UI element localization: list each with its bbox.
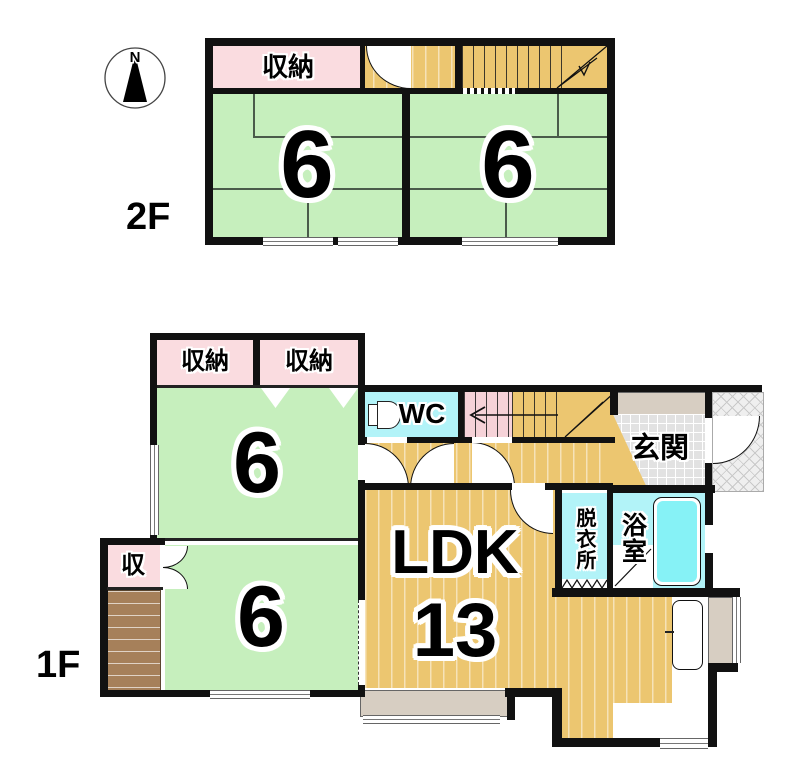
exterior-wall — [613, 485, 715, 493]
window — [338, 237, 398, 246]
window — [150, 445, 159, 535]
window — [210, 690, 310, 699]
exterior-wall — [100, 538, 108, 697]
floor2-room-b-size: 6 — [481, 117, 534, 213]
stair-opening-dashes — [460, 88, 515, 94]
entry-door-opening — [705, 418, 712, 463]
kitchen-floor — [613, 597, 672, 703]
floor1-plan: 収納 収納 6 収 6 WC 玄関 LDK 13 脱衣所 浴室 — [95, 330, 767, 760]
room-lower-size: 6 — [237, 574, 285, 660]
stairs-winder-lines — [565, 392, 615, 437]
floor2-plan: 収納 6 6 — [205, 38, 615, 245]
window — [263, 237, 333, 246]
ldk-size-label: 13 — [413, 593, 498, 669]
shoe-cabinet — [612, 392, 709, 416]
window — [363, 715, 500, 724]
dressing-label: 脱衣所 — [574, 508, 594, 571]
interior-wall — [253, 340, 260, 385]
ldk-label: LDK — [391, 522, 518, 584]
kitchen-floor — [555, 597, 613, 738]
exterior-wall — [507, 690, 515, 720]
exterior-wall — [150, 333, 157, 445]
interior-wall — [512, 437, 615, 443]
room-upper-size: 6 — [233, 420, 281, 506]
door-opening — [472, 437, 512, 443]
door-opening — [358, 445, 365, 480]
floor-plan-canvas: N 2F — [0, 0, 800, 783]
exterior-wall — [100, 538, 165, 545]
bathtub-icon — [653, 497, 701, 586]
door-opening — [512, 483, 545, 490]
interior-wall — [402, 94, 410, 237]
stairs-winder-lines — [557, 46, 607, 88]
exterior-wall — [205, 38, 213, 245]
interior-wall — [455, 46, 462, 88]
storage-small-label: 収 — [121, 554, 145, 578]
entrance-label: 玄関 — [631, 435, 689, 464]
exterior-wall — [358, 385, 762, 392]
interior-wall — [150, 538, 365, 541]
compass-icon: N — [102, 38, 168, 110]
window — [660, 738, 708, 749]
storage-a-label: 収納 — [181, 350, 229, 374]
kitchen-counter — [672, 600, 703, 670]
interior-wall — [157, 385, 358, 388]
interior-wall — [552, 588, 740, 597]
tatami-line — [557, 94, 559, 137]
floor2-storage-label: 収納 — [262, 54, 314, 80]
floor2-room-a-size: 6 — [280, 117, 333, 213]
veranda-deck — [107, 590, 161, 692]
bath-label: 浴室 — [620, 512, 645, 564]
wc-label: WC — [399, 400, 446, 428]
storage-b-label: 収納 — [285, 350, 333, 374]
interior-wall — [360, 46, 365, 88]
interior-wall — [607, 490, 613, 588]
interior-wall — [458, 392, 464, 437]
stairs-direction-arrow — [463, 404, 568, 426]
exterior-wall — [708, 663, 717, 747]
window — [462, 237, 558, 246]
compass-n-label: N — [130, 49, 141, 66]
exterior-wall — [150, 333, 365, 340]
floor2-label: 2F — [126, 196, 170, 239]
interior-wall — [107, 587, 163, 590]
exterior-wall — [607, 38, 615, 245]
tatami-line — [253, 94, 255, 137]
door-opening — [367, 437, 407, 443]
interior-wall — [610, 390, 618, 415]
faucet-icon — [665, 631, 674, 633]
exterior-wall — [552, 690, 562, 738]
bay-counter — [708, 597, 734, 665]
window-bay-deck — [360, 690, 509, 717]
interior-wall — [545, 483, 613, 490]
interior-wall — [213, 88, 607, 94]
exterior-wall — [205, 38, 615, 46]
interior-wall — [407, 437, 472, 443]
toilet-icon — [377, 401, 401, 429]
sliding-door — [358, 600, 365, 685]
interior-wall — [555, 490, 562, 588]
interior-wall — [358, 480, 365, 600]
interior-wall — [705, 392, 712, 418]
floor2-stairs — [462, 46, 562, 88]
window — [732, 597, 741, 663]
floor1-label: 1F — [36, 644, 80, 687]
window — [705, 525, 713, 553]
interior-wall — [358, 437, 367, 443]
interior-wall — [365, 483, 512, 490]
